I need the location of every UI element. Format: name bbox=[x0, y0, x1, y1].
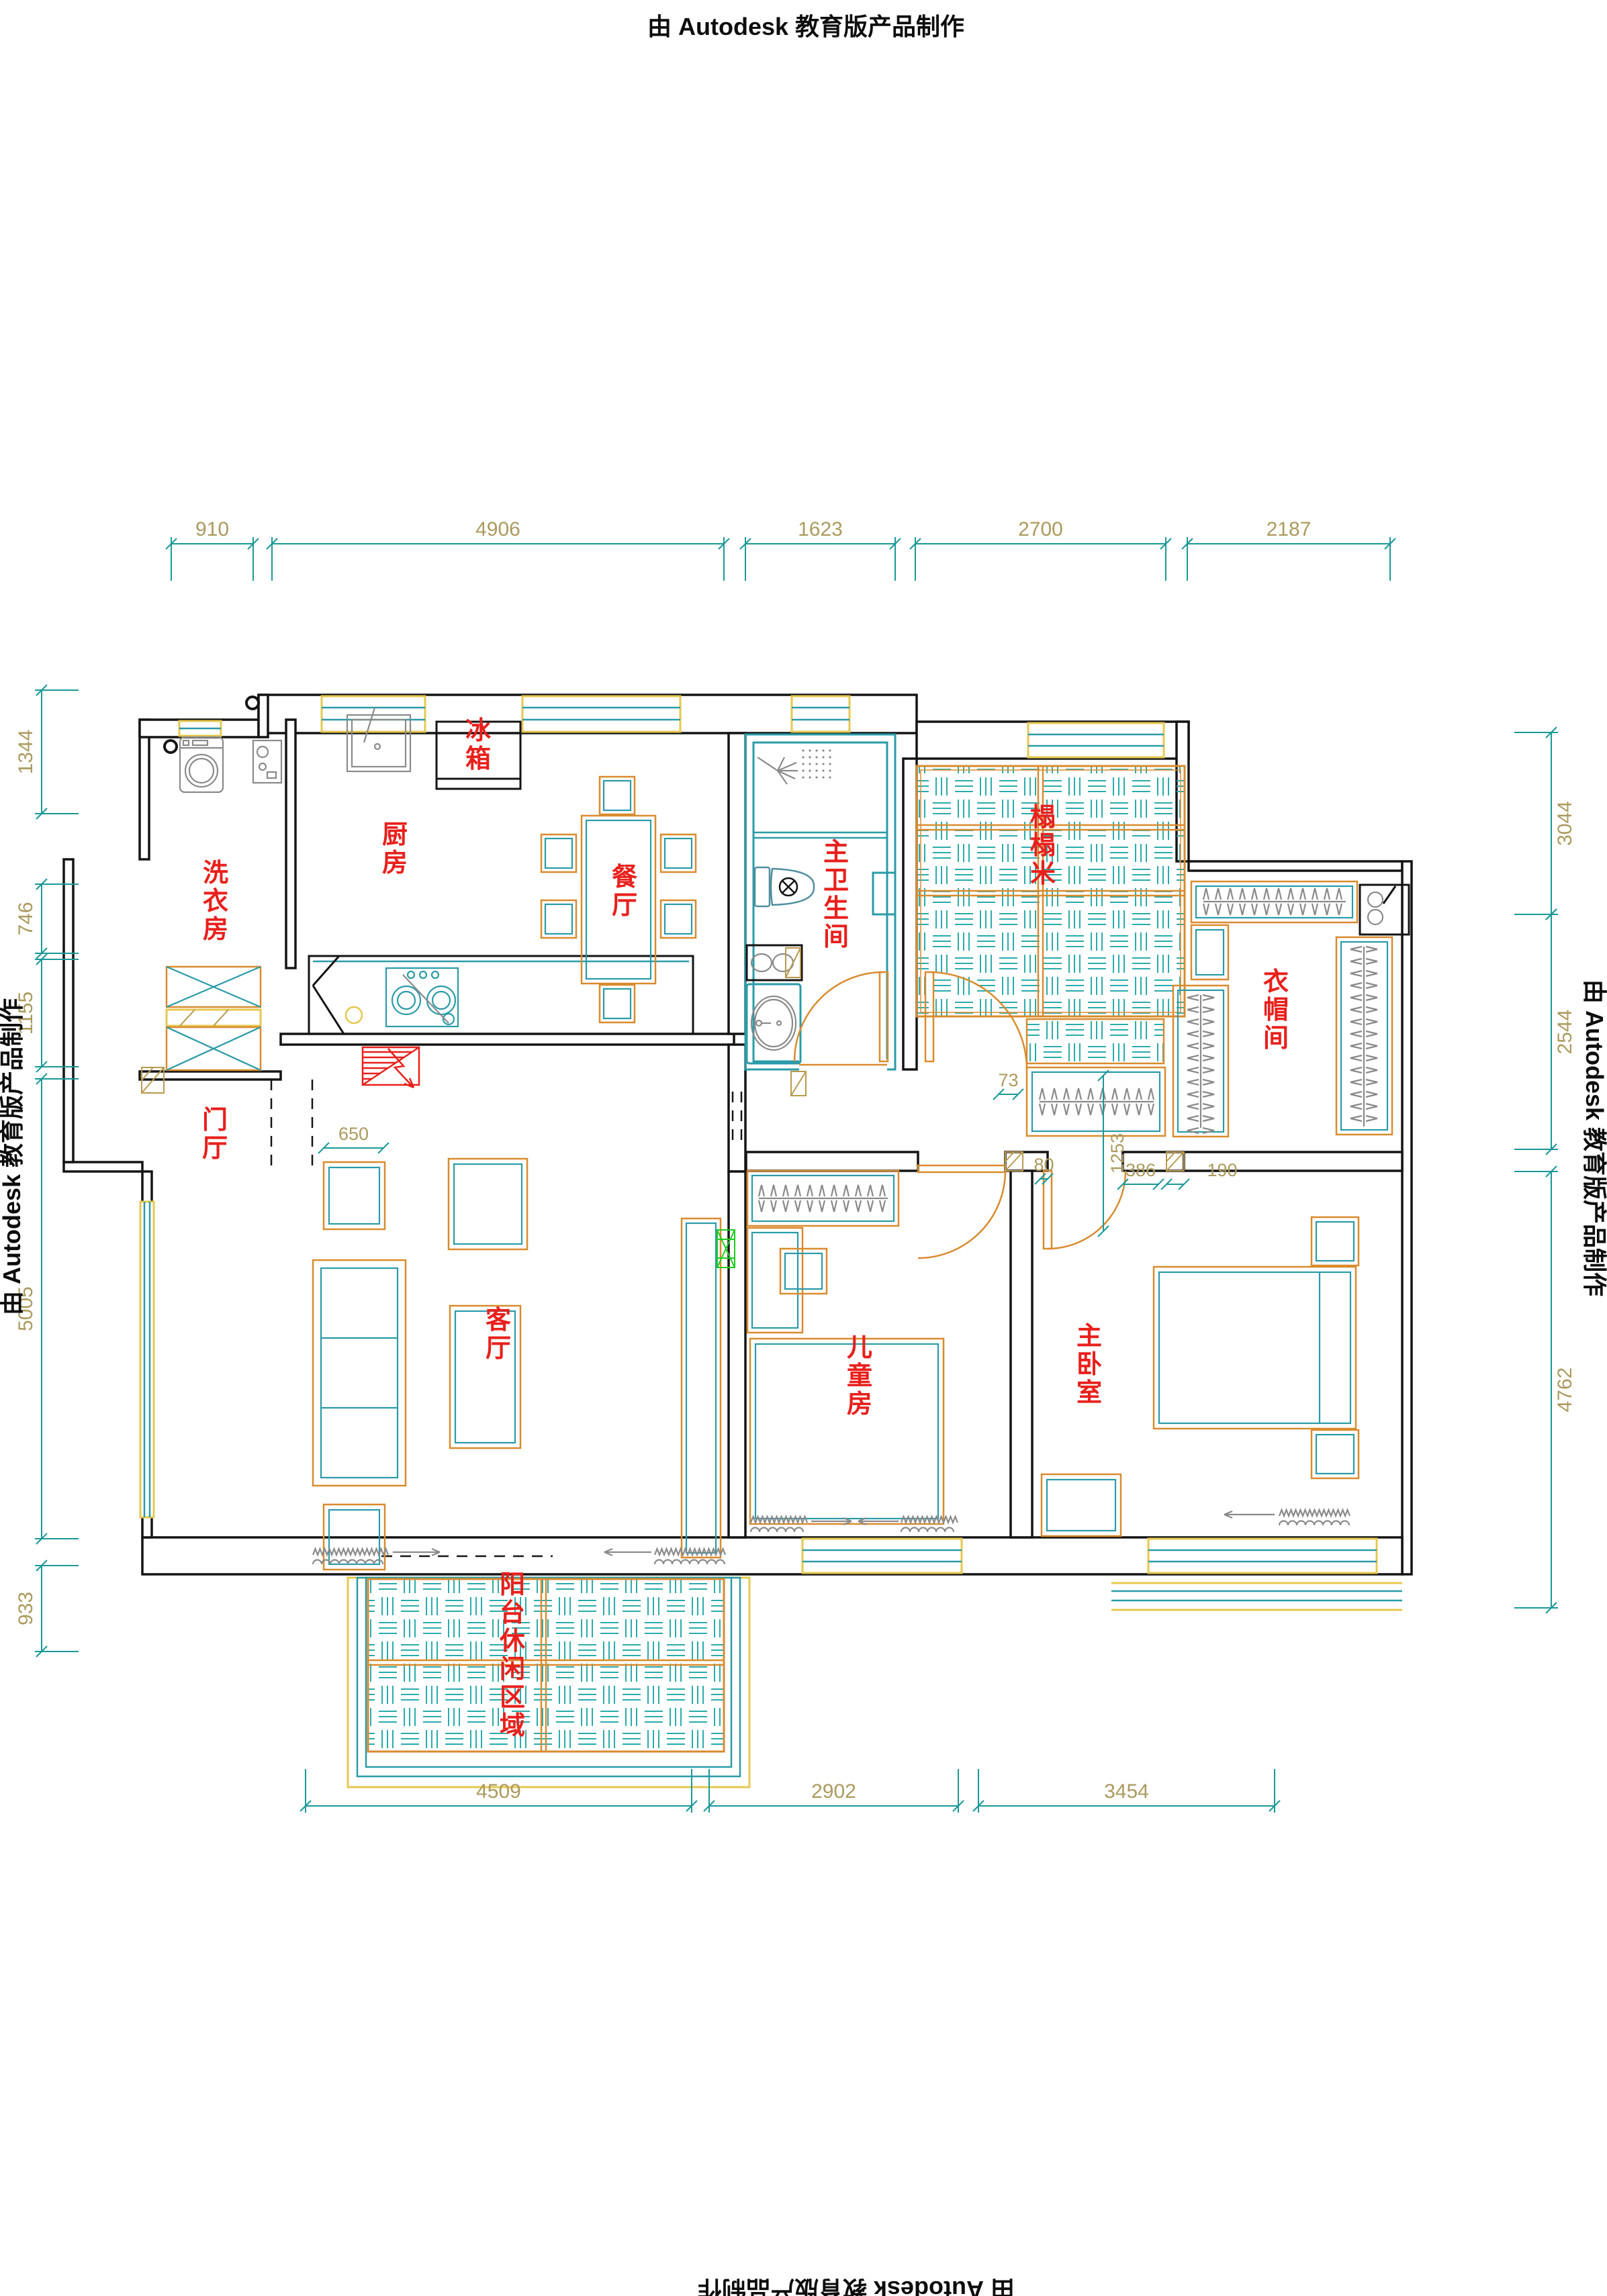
room-label-kitchen: 厨房 bbox=[382, 821, 408, 877]
tv-cabinet bbox=[682, 1218, 721, 1558]
dining-chair bbox=[600, 777, 635, 814]
kids-door bbox=[918, 1165, 1005, 1258]
living-room bbox=[313, 1159, 735, 1570]
svg-text:386: 386 bbox=[1126, 1160, 1156, 1180]
room-label-fridge: 冰箱 bbox=[465, 717, 492, 773]
tatami-hanger-rack bbox=[1040, 1088, 1154, 1115]
watermark-left: 由 Autodesk 教育版产品制作 bbox=[0, 998, 26, 1315]
dim-top-910: 910 bbox=[166, 518, 259, 581]
svg-text:190: 190 bbox=[1207, 1160, 1237, 1180]
svg-text:746: 746 bbox=[15, 902, 37, 935]
room-label-balcony: 阳台休闲区域 bbox=[499, 1571, 526, 1740]
water-heater-icon bbox=[253, 740, 281, 783]
room-label-kids: 儿童房 bbox=[847, 1334, 872, 1419]
closet-rack-right bbox=[1336, 937, 1392, 1135]
ottoman bbox=[1042, 1474, 1121, 1536]
dining-chair bbox=[541, 900, 576, 938]
dim-top-2700: 2700 bbox=[910, 518, 1171, 581]
dim-top-1623: 1623 bbox=[740, 518, 901, 581]
kids-room bbox=[747, 1171, 944, 1524]
room-label-foyer: 门厅 bbox=[202, 1106, 228, 1163]
dining-chair bbox=[541, 834, 576, 872]
dim-inner-73: 73 bbox=[993, 1070, 1023, 1100]
watermark-top: 由 Autodesk 教育版产品制作 bbox=[647, 13, 964, 40]
square-table bbox=[449, 1159, 527, 1249]
tatami-window bbox=[1028, 723, 1164, 757]
room-label-laundry: 洗衣房 bbox=[203, 859, 228, 944]
room-label-master-bed: 主卧室 bbox=[1076, 1323, 1102, 1407]
kids-window bbox=[802, 1539, 962, 1573]
gas-stove-icon bbox=[386, 968, 458, 1026]
dim-bottom-2902: 2902 bbox=[704, 1769, 964, 1813]
svg-text:1623: 1623 bbox=[798, 518, 843, 540]
electric-panel-icon bbox=[363, 1047, 419, 1088]
svg-text:650: 650 bbox=[338, 1124, 369, 1144]
svg-text:2700: 2700 bbox=[1018, 518, 1063, 540]
kids-desk bbox=[747, 1228, 802, 1333]
balcony bbox=[348, 1578, 749, 1787]
svg-text:1253: 1253 bbox=[1107, 1133, 1128, 1174]
floor-plan-drawing: 厨房 洗衣房 餐厅 冰箱 主卫生间 榻榻米 衣帽间 门厅 客厅 儿童房 主卧室 … bbox=[0, 0, 1607, 2296]
counter-sink-hole bbox=[346, 1007, 362, 1023]
side-table bbox=[324, 1162, 385, 1229]
toilet-icon bbox=[755, 867, 814, 906]
svg-text:3454: 3454 bbox=[1104, 1780, 1149, 1803]
dining-window bbox=[522, 696, 680, 732]
svg-text:1344: 1344 bbox=[15, 730, 37, 775]
kids-chair bbox=[780, 1249, 827, 1294]
floor-drain-icon bbox=[165, 740, 177, 753]
closet-shelf bbox=[1191, 925, 1228, 979]
dim-bottom-3454: 3454 bbox=[973, 1769, 1280, 1813]
walk-in-closet bbox=[1173, 881, 1409, 1137]
watermark-right: 由 Autodesk 教育版产品制作 bbox=[1581, 979, 1607, 1296]
shower-head-icon bbox=[757, 757, 798, 784]
master-door bbox=[1044, 1171, 1126, 1249]
kids-wardrobe bbox=[747, 1171, 899, 1226]
bathroom-door bbox=[794, 972, 888, 1065]
shower-spray-dots bbox=[802, 749, 831, 778]
svg-text:933: 933 bbox=[15, 1592, 37, 1625]
laundry-window bbox=[179, 721, 221, 736]
room-label-tatami: 榻榻米 bbox=[1030, 804, 1056, 888]
room-label-master-bath: 主卫生间 bbox=[823, 839, 849, 951]
dining-chair bbox=[661, 834, 696, 872]
floor-drain-icon bbox=[246, 697, 259, 709]
dining-chair bbox=[661, 900, 696, 938]
dining-chair bbox=[600, 985, 635, 1022]
dim-left-933: 933 bbox=[15, 1560, 79, 1657]
dim-inner-650: 650 bbox=[318, 1124, 389, 1153]
dim-right-2544: 2544 bbox=[1514, 909, 1576, 1155]
vanity-basin-icon bbox=[747, 984, 800, 1063]
svg-text:910: 910 bbox=[195, 518, 229, 540]
dim-top-4906: 4906 bbox=[267, 518, 729, 581]
nightstand bbox=[1312, 1217, 1359, 1265]
svg-text:80: 80 bbox=[1034, 1155, 1054, 1175]
living-left-window bbox=[140, 1202, 154, 1517]
walls bbox=[64, 695, 1412, 1574]
master-window bbox=[1148, 1539, 1377, 1573]
bath-counter bbox=[747, 945, 802, 980]
room-label-dining: 餐厅 bbox=[612, 863, 637, 920]
room-label-living: 客厅 bbox=[486, 1306, 511, 1363]
svg-text:2902: 2902 bbox=[811, 1780, 856, 1803]
dim-right-4762: 4762 bbox=[1514, 1166, 1576, 1613]
balcony-sliding-door bbox=[381, 1539, 553, 1572]
sofa bbox=[313, 1260, 406, 1486]
dim-top-2187: 2187 bbox=[1182, 518, 1395, 581]
closet-rack-top bbox=[1191, 881, 1357, 922]
bath-niche bbox=[873, 873, 895, 914]
svg-text:2544: 2544 bbox=[1554, 1010, 1576, 1055]
svg-text:4906: 4906 bbox=[475, 518, 520, 540]
tatami-step-hatch bbox=[1027, 1019, 1164, 1063]
master-bathroom bbox=[745, 734, 895, 1071]
nightstand bbox=[1312, 1430, 1359, 1478]
svg-text:2187: 2187 bbox=[1267, 518, 1312, 540]
svg-text:3044: 3044 bbox=[1554, 801, 1576, 846]
room-label-closet: 衣帽间 bbox=[1263, 968, 1289, 1053]
dim-right-3044: 3044 bbox=[1514, 727, 1576, 920]
watermark-bottom: 由 Autodesk 教育版产品制作 bbox=[698, 2276, 1015, 2296]
svg-text:4762: 4762 bbox=[1554, 1368, 1576, 1413]
svg-text:4509: 4509 bbox=[476, 1780, 521, 1803]
master-bed bbox=[1154, 1267, 1356, 1429]
dim-left-1344: 1344 bbox=[15, 685, 79, 819]
master-bay-lines bbox=[1111, 1583, 1402, 1610]
laundry-cabinets bbox=[167, 967, 261, 1070]
washing-machine-icon bbox=[180, 737, 223, 792]
bath-window bbox=[792, 696, 850, 732]
svg-text:73: 73 bbox=[998, 1070, 1018, 1090]
cad-canvas: 厨房 洗衣房 餐厅 冰箱 主卫生间 榻榻米 衣帽间 门厅 客厅 儿童房 主卧室 … bbox=[0, 0, 1607, 2296]
